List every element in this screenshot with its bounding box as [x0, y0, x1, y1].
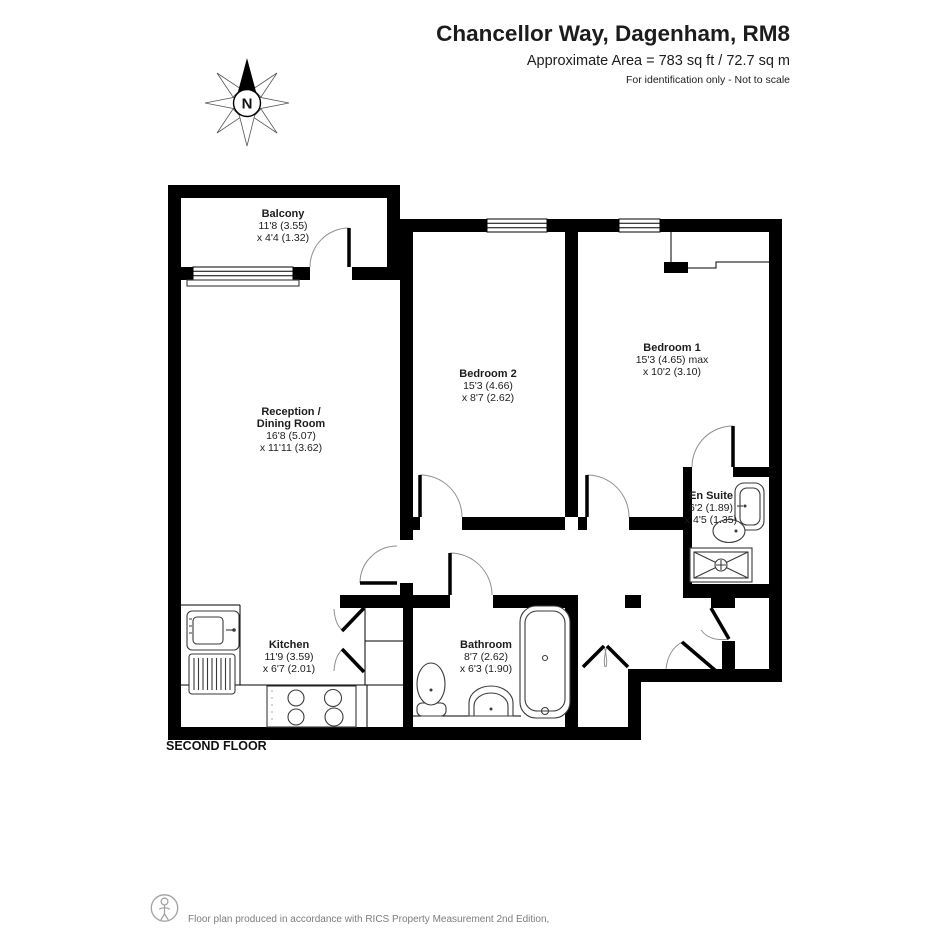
bathtub: [520, 606, 570, 718]
door-entrance: [666, 642, 716, 671]
window-bedroom1: [619, 219, 660, 232]
door-kitchen-cupboard: [334, 608, 364, 672]
label-reception: Reception / Dining Room 16'8 (5.07) x 11…: [257, 406, 326, 454]
room-dim: x 6'7 (2.01): [263, 663, 315, 675]
footer-line1: Floor plan produced in accordance with R…: [188, 914, 642, 926]
room-dim: x 8'7 (2.62): [462, 392, 514, 404]
door-hall-cupboard: [583, 646, 628, 667]
compass-icon: N: [205, 60, 289, 146]
door-reception: [360, 546, 397, 583]
floorplan-page: Chancellor Way, Dagenham, RM8 Approximat…: [0, 0, 945, 945]
nichecom-person-icon: [149, 891, 180, 925]
compass-north-label: N: [242, 96, 253, 113]
kitchen-sink: [187, 611, 239, 650]
room-dim: x 4'5 (1.35): [685, 514, 737, 526]
room-dim: x 10'2 (3.10): [643, 366, 701, 378]
door-bathroom: [450, 553, 492, 595]
door-entry-inner: [701, 608, 729, 640]
door-bedroom1: [587, 475, 629, 517]
room-name: Balcony: [262, 208, 306, 220]
room-dim: 11'9 (3.59): [264, 651, 313, 663]
room-dim: 11'8 (3.55): [258, 220, 307, 232]
label-kitchen: Kitchen 11'9 (3.59) x 6'7 (2.01): [263, 639, 315, 675]
label-bathroom: Bathroom 8'7 (2.62) x 6'3 (1.90): [460, 639, 512, 675]
room-dim: 6'2 (1.89): [689, 502, 733, 514]
room-name: Kitchen: [269, 639, 310, 651]
room-name: En Suite: [689, 490, 733, 502]
room-dim: 15'3 (4.65) max: [636, 354, 709, 366]
bathroom-toilet: [417, 663, 446, 716]
room-name: Bathroom: [460, 639, 512, 651]
room-dim: 15'3 (4.66): [463, 380, 513, 392]
kitchen-appliance: [189, 654, 235, 694]
label-bedroom2: Bedroom 2 15'3 (4.66) x 8'7 (2.62): [459, 368, 516, 404]
room-name: Bedroom 2: [459, 368, 516, 380]
window-reception-balcony: [187, 267, 299, 286]
door-balcony: [310, 228, 349, 267]
room-name: Reception /: [261, 406, 320, 418]
kitchen-hob: [267, 686, 356, 727]
footer-text: Floor plan produced in accordance with R…: [188, 891, 642, 945]
floorplan-drawing: N: [0, 0, 945, 945]
room-dim: x 6'3 (1.90): [460, 663, 512, 675]
floor-label: SECOND FLOOR: [166, 739, 267, 753]
bathroom-sink: [469, 686, 513, 716]
room-dim: x 11'11 (3.62): [260, 442, 322, 454]
room-name: Dining Room: [257, 418, 326, 430]
shower-tray: [690, 548, 752, 582]
footer: Floor plan produced in accordance with R…: [149, 891, 642, 945]
room-dim: x 4'4 (1.32): [257, 232, 309, 244]
label-bedroom1: Bedroom 1 15'3 (4.65) max x 10'2 (3.10): [636, 342, 709, 378]
room-dim: 16'8 (5.07): [266, 430, 316, 442]
label-ensuite: En Suite 6'2 (1.89) x 4'5 (1.35): [685, 490, 737, 526]
door-ensuite: [692, 426, 733, 467]
door-bedroom2: [420, 475, 462, 517]
label-balcony: Balcony 11'8 (3.55) x 4'4 (1.32): [257, 208, 309, 244]
room-name: Bedroom 1: [643, 342, 700, 354]
room-dim: 8'7 (2.62): [464, 651, 508, 663]
window-bedroom2: [487, 219, 547, 232]
